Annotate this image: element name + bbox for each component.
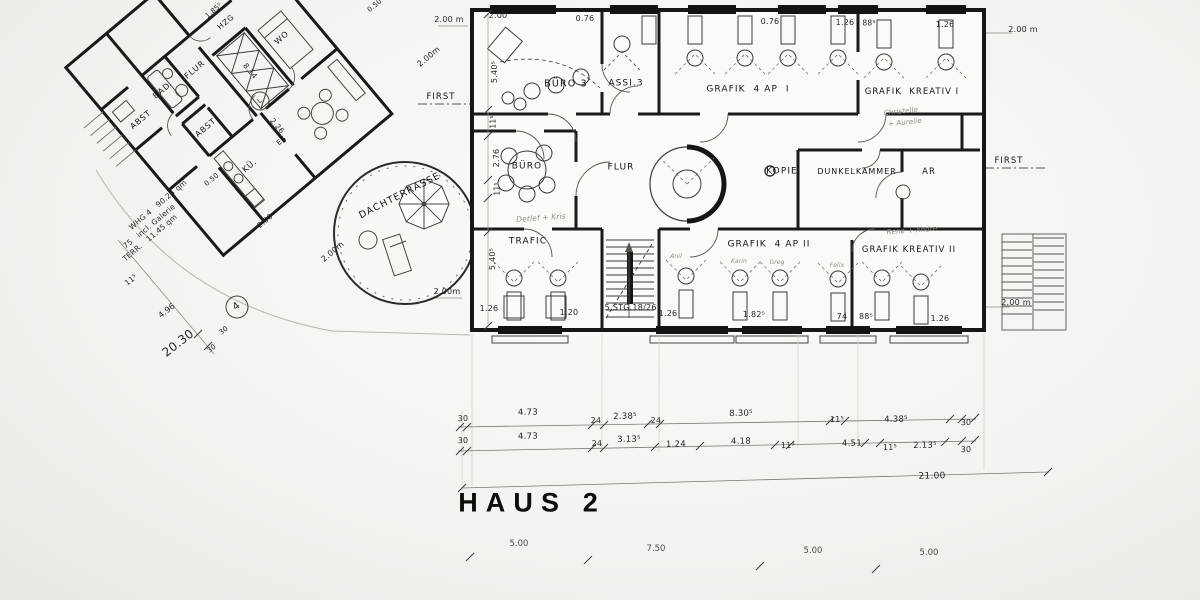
dim-west-5: 5.40⁵ xyxy=(489,248,497,270)
room-label-grafik-kreativ-1: GRAFIK KREATIV I xyxy=(865,88,959,97)
dimrow2-8: 4.51 xyxy=(842,440,862,449)
dimrow2-1: 30 xyxy=(458,437,469,445)
room-label-assi3: ASSI.3 xyxy=(608,80,643,89)
room-label-bad: BAD xyxy=(152,82,172,101)
dim-site-496: 4.96 xyxy=(157,302,177,320)
room-label-ar: AR xyxy=(922,168,936,177)
dim-top-6: 1.26 xyxy=(936,21,955,29)
handwriting-desk-4: Felix xyxy=(830,263,845,269)
dim-top-4: 1.26 xyxy=(836,19,855,27)
room-label-dunkelkammer: DUNKELKAMMER xyxy=(817,168,896,176)
dimrow1-3: 24 xyxy=(591,417,602,425)
meter-ne: 2.00 m xyxy=(1008,26,1038,34)
dim-site-2030: 20.30 xyxy=(160,327,196,359)
dim-south-1: 1.26 xyxy=(480,305,499,313)
dimrow1-5: 24 xyxy=(651,417,662,425)
room-label-grafik-4ap-1: GRAFIK 4 AP I xyxy=(706,86,789,95)
dimrow1-7: 11⁵ xyxy=(830,416,844,424)
room-label-hzg: HZG xyxy=(216,13,236,31)
annotation-layer: BÜRO 3ASSI.3GRAFIK 4 AP IGRAFIK KREATIV … xyxy=(0,0,1200,600)
dimrow2-4: 3.13⁵ xyxy=(617,436,641,445)
dim-total: 21.00 xyxy=(918,472,945,481)
dimrow1-6: 8.30⁵ xyxy=(729,410,753,419)
room-label-abst-1: ABST xyxy=(129,109,153,131)
dimrow1-4: 2.38⁵ xyxy=(613,413,637,422)
meter-nw-2: 2.00m xyxy=(416,45,442,68)
dim-south-7: 1.26 xyxy=(931,315,950,323)
sheet-title: HAUS 2 xyxy=(458,490,606,517)
handwriting-kreativ1-a: Christelle xyxy=(884,107,919,118)
marker-l: L xyxy=(256,97,264,105)
dimrow2-9: 11⁵ xyxy=(883,444,897,452)
handwriting-desk-1: Anil xyxy=(670,254,682,260)
dim-whg-200: 2.00 xyxy=(256,212,274,229)
grid-dim-1: 5.00 xyxy=(510,540,529,549)
room-label-buero3: BÜRO 3 xyxy=(544,79,587,89)
handwriting-desk-2: Karin xyxy=(731,259,747,265)
ridge-label-east: FIRST xyxy=(995,157,1024,166)
dim-west-3: 2.76 xyxy=(493,149,501,168)
meter-nw-1: 2.00 m xyxy=(434,16,464,24)
floor-plan-sheet: BÜRO 3ASSI.3GRAFIK 4 AP IGRAFIK KREATIV … xyxy=(0,0,1200,600)
meter-terrace: 2.00m xyxy=(434,288,461,296)
room-label-flur-haus2: FLUR xyxy=(608,164,635,173)
dim-site-30b: 30 xyxy=(206,343,218,354)
dimrow2-11: 30 xyxy=(961,446,972,454)
dim-west-2: 11⁵ xyxy=(489,115,497,128)
grid-dim-2: 7.50 xyxy=(647,545,666,554)
dim-whg-226: 2.26 xyxy=(268,117,285,135)
handwriting-desk-3: Greg xyxy=(769,260,784,266)
stair-label: 15 STG.18/26 xyxy=(599,304,656,312)
grid-dim-3: 5.00 xyxy=(804,547,823,556)
dimrow2-7: 11⁵ xyxy=(781,442,795,450)
dim-whg-814: 8.14 xyxy=(241,62,258,80)
dim-whg-050b: 0.50 xyxy=(366,0,383,14)
room-label-flur-whg: FLUR xyxy=(183,59,206,81)
dimrow2-10: 2.13⁵ xyxy=(913,442,937,451)
dimrow1-1: 30 xyxy=(458,415,469,423)
grid-dim-4: 5.00 xyxy=(920,549,939,558)
room-label-es: ES xyxy=(276,135,289,147)
dim-south-2: 1.20 xyxy=(560,309,579,317)
dim-top-5: 88⁵ xyxy=(862,19,875,27)
dim-south-4: 1.82⁵ xyxy=(743,311,765,319)
dim-top-1: 2.00 xyxy=(489,12,508,20)
dimrow1-9: 30 xyxy=(961,419,972,427)
dimrow2-6: 4.18 xyxy=(731,438,751,447)
dim-whg-185: 1.85⁵ xyxy=(204,2,223,20)
meter-sw: 2.00m xyxy=(320,240,346,263)
room-label-kopie: KOPIE xyxy=(766,168,798,177)
dim-south-5: 74 xyxy=(837,313,848,321)
handwriting-kreativ1-b: + Aurelie xyxy=(888,118,923,129)
room-label-grafik-4ap-2: GRAFIK 4 AP II xyxy=(727,241,810,250)
dimrow2-5: 1.24 xyxy=(666,441,686,450)
dim-whg-050a: 0.50 xyxy=(203,172,220,188)
dimrow2-2: 4.73 xyxy=(518,433,538,442)
dim-west-1: 5.40⁵ xyxy=(491,61,499,83)
terrace-label: DACHTERRASSE xyxy=(358,171,443,220)
dim-west-4: 11⁵ xyxy=(493,182,501,195)
dim-south-3: 1.26 xyxy=(659,310,678,318)
room-label-wo: WO xyxy=(273,30,291,47)
dimrow1-2: 4.73 xyxy=(518,409,538,418)
handwriting-kreativ2: Rene + Andre xyxy=(886,226,937,237)
dim-top-2: 0.76 xyxy=(576,15,595,23)
meter-se: 2.00 m xyxy=(1001,299,1031,307)
dim-south-6: 88⁵ xyxy=(859,313,873,321)
dim-site-115: 11⁵ xyxy=(123,273,138,287)
dimrow1-8: 4.38⁵ xyxy=(884,416,908,425)
dim-top-3: 0.76 xyxy=(761,18,780,26)
dimrow2-3: 24 xyxy=(592,440,603,448)
room-label-trafic: TRAFIC xyxy=(509,238,547,247)
marker-4: 4 xyxy=(231,301,242,313)
ridge-label-west: FIRST xyxy=(427,93,456,102)
dim-site-30a: 30 xyxy=(218,325,230,336)
room-label-kueche: KÜ. xyxy=(241,158,259,175)
room-label-abst-2: ABST xyxy=(194,117,218,139)
handwriting-trafic: Detlef + Kris xyxy=(516,213,566,224)
room-label-buero: BÜRO xyxy=(512,163,542,172)
room-label-grafik-kreativ-2: GRAFIK KREATIV II xyxy=(862,246,956,255)
